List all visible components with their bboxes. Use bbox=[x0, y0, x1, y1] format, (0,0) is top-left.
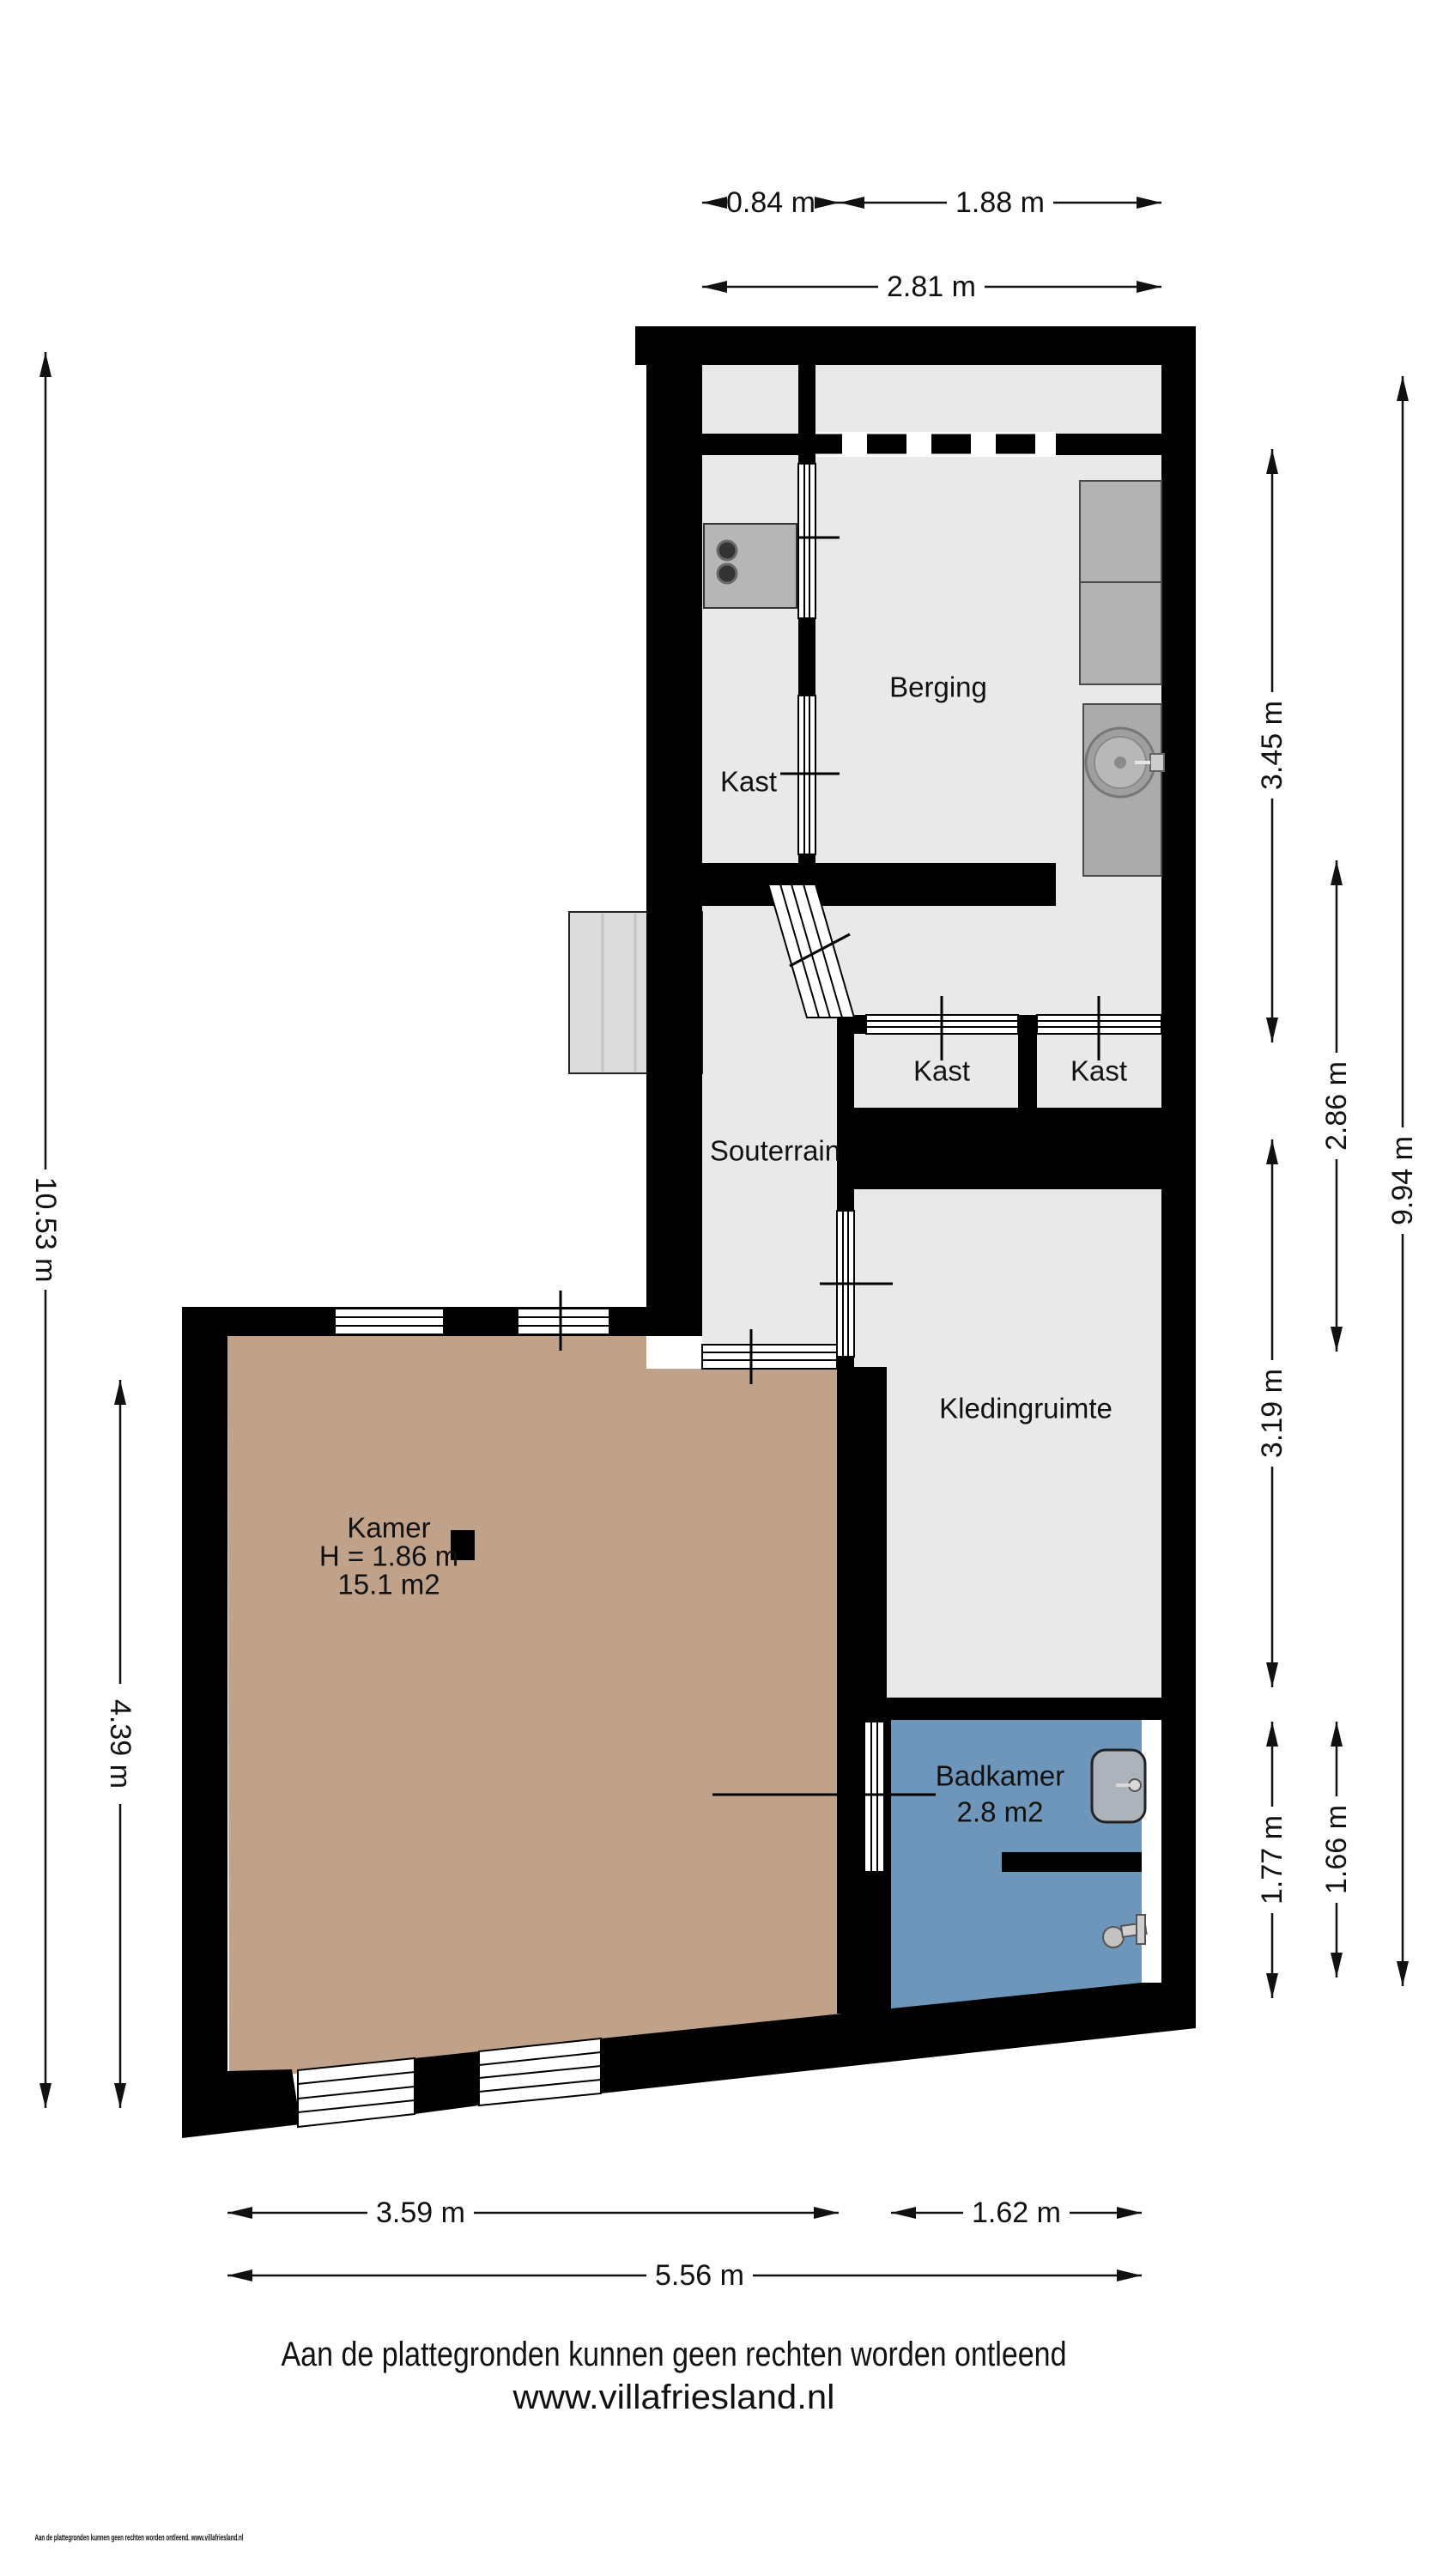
dim-left-1053: 10.53 m bbox=[29, 352, 62, 2108]
floor-plan-drawing: Berging Kast Kast Kast Souterrain Kledin… bbox=[0, 0, 1449, 2576]
badkamer-sink-icon bbox=[1092, 1750, 1145, 1822]
dim-top-188: 1.88 m bbox=[840, 186, 1161, 219]
dim-right-177: 1.77 m bbox=[1256, 1722, 1288, 1998]
boiler-icon bbox=[704, 524, 797, 608]
wall-right bbox=[1161, 326, 1196, 1992]
svg-text:9.94 m: 9.94 m bbox=[1386, 1136, 1419, 1225]
label-badkamer: Badkamer bbox=[936, 1760, 1064, 1792]
footer-website: www.villafriesland.nl bbox=[512, 2379, 834, 2416]
svg-text:1.88 m: 1.88 m bbox=[955, 186, 1045, 219]
wall-kast-divider bbox=[1018, 1034, 1037, 1108]
label-kamer-height: H = 1.86 m bbox=[319, 1540, 458, 1572]
wall-souterrain-right bbox=[837, 1018, 854, 1211]
dim-top-281: 2.81 m bbox=[702, 270, 1161, 303]
room-kamer-floor bbox=[227, 1336, 837, 2081]
label-kast-left: Kast bbox=[720, 766, 777, 798]
label-souterrain: Souterrain bbox=[710, 1135, 840, 1167]
label-kamer: Kamer bbox=[347, 1512, 430, 1544]
dim-bottom-556: 5.56 m bbox=[227, 2259, 1142, 2292]
svg-text:3.59 m: 3.59 m bbox=[376, 2196, 465, 2229]
svg-text:4.39 m: 4.39 m bbox=[104, 1699, 136, 1789]
svg-text:3.45 m: 3.45 m bbox=[1256, 701, 1288, 790]
wall-kamer-left bbox=[182, 1307, 227, 2078]
svg-text:1.66 m: 1.66 m bbox=[1320, 1805, 1353, 1894]
dim-bottom-359: 3.59 m bbox=[227, 2196, 839, 2229]
svg-text:1.62 m: 1.62 m bbox=[972, 2196, 1061, 2229]
window-souterrain-bottom bbox=[702, 1345, 837, 1369]
floor-plan-page: Berging Kast Kast Kast Souterrain Kledin… bbox=[0, 0, 1449, 2576]
label-kamer-area: 15.1 m2 bbox=[337, 1569, 440, 1601]
label-kast-right: Kast bbox=[1070, 1055, 1127, 1087]
label-kledingruimte: Kledingruimte bbox=[939, 1393, 1113, 1425]
dim-right-994: 9.94 m bbox=[1386, 376, 1419, 1986]
svg-text:1.77 m: 1.77 m bbox=[1256, 1815, 1288, 1905]
label-kast-mid: Kast bbox=[913, 1055, 970, 1087]
wall-bottom-pillar bbox=[415, 2051, 479, 2114]
wall-kast-bottom-band bbox=[837, 1108, 1161, 1189]
wall-left-upper bbox=[646, 326, 702, 1307]
window-boiler-room bbox=[798, 464, 815, 618]
svg-text:5.56 m: 5.56 m bbox=[655, 2259, 744, 2292]
footer-disclaimer: Aan de plattegronden kunnen geen rechten… bbox=[282, 2336, 1067, 2373]
window-kamer-top-1 bbox=[335, 1309, 444, 1334]
room-kledingruimte-floor bbox=[854, 1189, 1161, 1698]
footer: Aan de plattegronden kunnen geen rechten… bbox=[35, 2336, 1067, 2543]
svg-text:2.86 m: 2.86 m bbox=[1320, 1061, 1353, 1151]
footer-fine-print: Aan de plattegronden kunnen geen rechten… bbox=[35, 2534, 244, 2543]
wall-top bbox=[635, 326, 1196, 365]
window-kamer-top-2 bbox=[518, 1309, 609, 1334]
svg-text:3.19 m: 3.19 m bbox=[1256, 1369, 1288, 1458]
svg-text:0.84 m: 0.84 m bbox=[726, 186, 815, 219]
sink-icon bbox=[1083, 704, 1164, 876]
washing-machine-icon bbox=[1080, 481, 1161, 684]
svg-text:10.53 m: 10.53 m bbox=[29, 1177, 62, 1283]
door-badkamer bbox=[864, 1722, 884, 1872]
label-berging: Berging bbox=[889, 671, 987, 703]
dim-left-439: 4.39 m bbox=[104, 1380, 136, 2108]
label-badkamer-area: 2.8 m2 bbox=[957, 1796, 1044, 1828]
dim-top-084: 0.84 m bbox=[702, 186, 840, 219]
wall-badkamer-stub bbox=[1002, 1852, 1142, 1872]
window-kamer-bottom-1 bbox=[298, 2058, 415, 2127]
dim-right-345: 3.45 m bbox=[1256, 449, 1288, 1042]
dim-right-166: 1.66 m bbox=[1320, 1722, 1353, 1978]
dim-right-319: 3.19 m bbox=[1256, 1139, 1288, 1687]
wall-bottom-left-corner bbox=[182, 2061, 300, 2138]
svg-text:2.81 m: 2.81 m bbox=[887, 270, 976, 303]
wall-kleding-left bbox=[837, 1367, 887, 1720]
wall-berging-bottom bbox=[702, 863, 1056, 906]
wall-badkamer-top bbox=[887, 1698, 1161, 1720]
dim-right-286: 2.86 m bbox=[1320, 860, 1353, 1352]
dim-bottom-162: 1.62 m bbox=[891, 2196, 1142, 2229]
